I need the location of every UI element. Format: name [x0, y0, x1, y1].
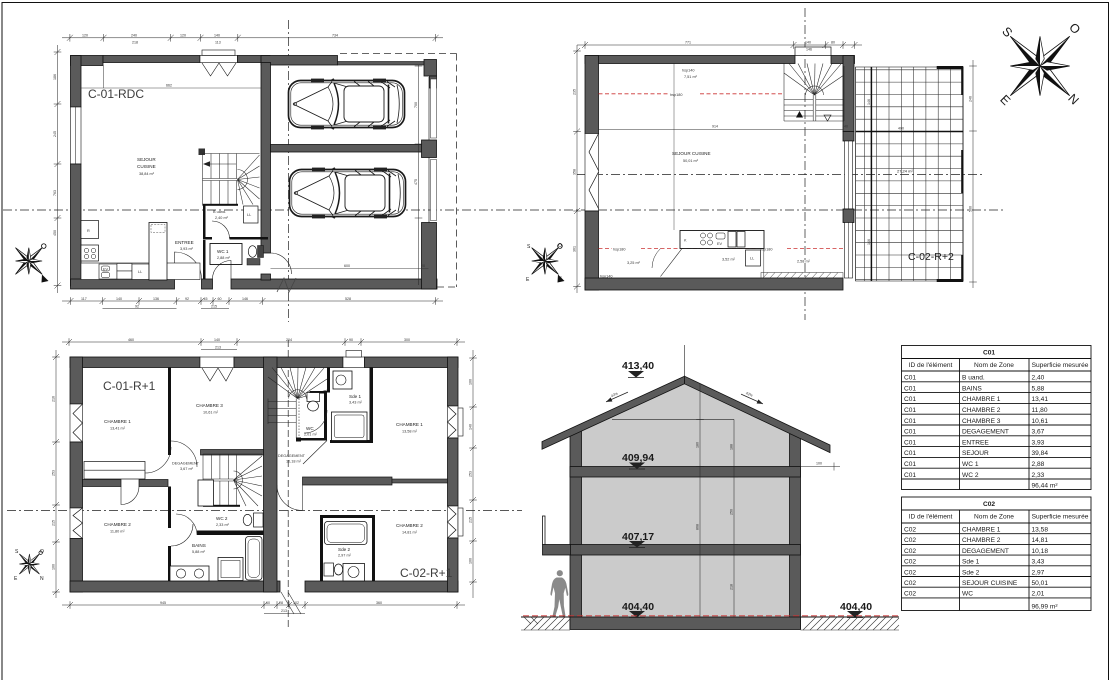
- svg-text:C-02-R+2: C-02-R+2: [908, 251, 954, 263]
- svg-text:hsp180: hsp180: [613, 248, 625, 252]
- svg-text:240: 240: [131, 34, 137, 38]
- svg-text:N: N: [40, 576, 44, 582]
- svg-text:C01: C01: [904, 439, 916, 446]
- svg-text:102: 102: [293, 601, 299, 605]
- svg-text:146: 146: [867, 239, 871, 245]
- svg-text:WC 1: WC 1: [962, 461, 979, 468]
- svg-text:528: 528: [345, 297, 351, 301]
- svg-text:C02: C02: [904, 548, 916, 555]
- svg-text:945: 945: [160, 601, 166, 605]
- svg-text:868: 868: [696, 524, 700, 530]
- svg-text:C01: C01: [904, 429, 916, 436]
- svg-text:2,01: 2,01: [1032, 591, 1045, 598]
- svg-text:SEJOUR: SEJOUR: [137, 157, 156, 162]
- svg-text:Superficie mesurée: Superficie mesurée: [1032, 514, 1089, 521]
- svg-text:662: 662: [166, 84, 172, 88]
- svg-text:2,40: 2,40: [1032, 375, 1045, 382]
- svg-text:BAINS: BAINS: [962, 385, 982, 392]
- svg-text:216: 216: [52, 396, 56, 402]
- svg-text:C01: C01: [904, 385, 916, 392]
- svg-text:C01: C01: [904, 396, 916, 403]
- svg-text:CHAMBRE 1: CHAMBRE 1: [104, 419, 131, 424]
- svg-text:B uand.: B uand.: [213, 210, 226, 214]
- svg-text:BAINS: BAINS: [192, 543, 206, 548]
- svg-text:11,80 m²: 11,80 m²: [110, 530, 125, 534]
- svg-text:C01: C01: [904, 407, 916, 414]
- svg-text:CHAMBRE 3: CHAMBRE 3: [196, 403, 223, 408]
- svg-text:113: 113: [215, 41, 221, 45]
- svg-text:SEJOUR: SEJOUR: [962, 450, 989, 457]
- svg-text:60: 60: [218, 297, 222, 301]
- svg-text:2,58 m²: 2,58 m²: [797, 260, 811, 264]
- svg-text:475: 475: [414, 179, 418, 185]
- svg-text:2,40 m²: 2,40 m²: [215, 216, 229, 220]
- svg-text:7,51 m²: 7,51 m²: [684, 75, 698, 79]
- svg-text:CHAMBRE 2: CHAMBRE 2: [104, 522, 131, 527]
- svg-text:CUISINE: CUISINE: [137, 164, 156, 169]
- svg-text:146: 146: [806, 48, 812, 52]
- svg-text:450: 450: [53, 230, 57, 236]
- svg-text:90: 90: [349, 338, 353, 342]
- svg-text:O: O: [558, 243, 562, 249]
- svg-text:ENTREE: ENTREE: [175, 240, 194, 245]
- svg-text:R: R: [87, 229, 90, 233]
- svg-text:80: 80: [831, 41, 835, 45]
- svg-text:Sde 2: Sde 2: [338, 547, 350, 552]
- svg-text:771: 771: [685, 41, 691, 45]
- svg-text:C02: C02: [983, 501, 995, 508]
- svg-text:100: 100: [469, 379, 473, 385]
- svg-text:2,33 m²: 2,33 m²: [216, 523, 230, 527]
- svg-text:300: 300: [404, 338, 410, 342]
- svg-text:188: 188: [730, 444, 734, 450]
- svg-text:245: 245: [53, 131, 57, 137]
- svg-text:914: 914: [712, 125, 718, 129]
- svg-text:204: 204: [286, 338, 292, 342]
- svg-text:763: 763: [53, 190, 57, 196]
- svg-text:50,01: 50,01: [1032, 580, 1049, 587]
- svg-text:3,67: 3,67: [1032, 429, 1045, 436]
- svg-text:218: 218: [132, 41, 138, 45]
- svg-text:ID de l'élément: ID de l'élément: [909, 362, 953, 369]
- svg-text:DEGAGEMENT: DEGAGEMENT: [278, 454, 306, 458]
- svg-text:50,01 m²: 50,01 m²: [683, 159, 699, 163]
- svg-text:C01: C01: [904, 375, 916, 382]
- svg-text:C01: C01: [904, 418, 916, 425]
- svg-text:11,80: 11,80: [1032, 407, 1048, 414]
- svg-text:C01: C01: [904, 472, 916, 479]
- svg-text:3,25 m²: 3,25 m²: [627, 261, 641, 265]
- svg-text:CHAMBRE 2: CHAMBRE 2: [962, 537, 1001, 544]
- svg-text:C01: C01: [904, 461, 916, 468]
- svg-text:96,44 m²: 96,44 m²: [1032, 482, 1059, 489]
- svg-text:hsp140: hsp140: [600, 275, 612, 279]
- svg-text:5,88: 5,88: [1032, 385, 1045, 392]
- svg-text:360: 360: [376, 601, 382, 605]
- svg-text:235: 235: [573, 89, 577, 95]
- svg-text:92: 92: [135, 304, 139, 308]
- svg-text:C02: C02: [904, 559, 916, 566]
- svg-text:WC 2: WC 2: [962, 472, 979, 479]
- svg-text:213: 213: [281, 609, 287, 613]
- svg-text:DEGAGEMENT: DEGAGEMENT: [962, 429, 1009, 436]
- svg-text:WC: WC: [962, 591, 973, 598]
- svg-text:10,61: 10,61: [1032, 418, 1049, 425]
- svg-text:2,97 m²: 2,97 m²: [338, 554, 352, 558]
- svg-text:180: 180: [696, 442, 700, 448]
- svg-text:60: 60: [266, 601, 270, 605]
- svg-text:3,43: 3,43: [1032, 559, 1045, 566]
- svg-text:140: 140: [214, 338, 220, 342]
- svg-text:3,67 m²: 3,67 m²: [180, 467, 194, 471]
- svg-text:3,93: 3,93: [1032, 439, 1045, 446]
- svg-text:13,41: 13,41: [1032, 396, 1049, 403]
- svg-text:C-02-R+1: C-02-R+1: [400, 566, 453, 580]
- svg-text:C-01-RDC: C-01-RDC: [88, 87, 144, 101]
- svg-text:Sde 1: Sde 1: [962, 559, 980, 566]
- svg-text:92: 92: [185, 297, 189, 301]
- svg-text:WC 1: WC 1: [217, 249, 229, 254]
- svg-text:215: 215: [211, 304, 217, 308]
- svg-text:EV: EV: [103, 268, 109, 272]
- svg-text:120: 120: [180, 34, 186, 38]
- svg-text:253: 253: [52, 470, 56, 476]
- svg-text:250: 250: [730, 509, 734, 515]
- svg-text:Superficie mesurée: Superficie mesurée: [1032, 362, 1089, 369]
- svg-text:13,58: 13,58: [1032, 527, 1049, 534]
- svg-text:100: 100: [52, 564, 56, 570]
- svg-text:358: 358: [573, 169, 577, 175]
- svg-text:39,84: 39,84: [1032, 450, 1049, 457]
- svg-text:213: 213: [215, 345, 221, 349]
- svg-text:413,40: 413,40: [622, 360, 654, 372]
- svg-text:ID de l'élément: ID de l'élément: [909, 514, 953, 521]
- svg-text:215: 215: [52, 520, 56, 526]
- svg-text:96,99 m²: 96,99 m²: [1032, 603, 1059, 610]
- svg-text:700: 700: [414, 102, 418, 108]
- svg-text:C02: C02: [904, 527, 916, 534]
- svg-text:13,58 m²: 13,58 m²: [402, 430, 418, 434]
- svg-text:120: 120: [82, 34, 88, 38]
- svg-text:CHAMBRE 1: CHAMBRE 1: [962, 396, 1001, 403]
- svg-text:45: 45: [204, 297, 208, 301]
- svg-text:734: 734: [332, 34, 338, 38]
- svg-text:186: 186: [53, 74, 57, 80]
- svg-text:136: 136: [153, 297, 159, 301]
- svg-text:146: 146: [242, 297, 248, 301]
- svg-text:C02: C02: [904, 569, 916, 576]
- svg-text:C01: C01: [904, 450, 916, 457]
- svg-text:N: N: [558, 276, 562, 282]
- svg-text:409,94: 409,94: [622, 452, 654, 464]
- svg-text:ENTREE: ENTREE: [962, 439, 989, 446]
- svg-text:140: 140: [805, 41, 811, 45]
- svg-text:117: 117: [81, 297, 87, 301]
- svg-text:140: 140: [116, 297, 122, 301]
- svg-text:C01: C01: [983, 350, 995, 357]
- svg-text:146: 146: [867, 99, 871, 105]
- svg-text:3,52 m²: 3,52 m²: [722, 258, 736, 262]
- svg-text:10,18: 10,18: [1032, 548, 1049, 555]
- svg-text:LL: LL: [247, 213, 251, 217]
- svg-text:C-01-R+1: C-01-R+1: [103, 379, 156, 393]
- svg-text:13,41 m²: 13,41 m²: [110, 427, 126, 431]
- svg-text:DEGAGEMENT: DEGAGEMENT: [962, 548, 1009, 555]
- svg-text:361: 361: [573, 246, 577, 252]
- svg-text:400: 400: [898, 127, 904, 131]
- svg-text:CHAMBRE 2: CHAMBRE 2: [396, 523, 423, 528]
- svg-text:CHAMBRE 2: CHAMBRE 2: [962, 407, 1001, 414]
- svg-text:C02: C02: [904, 591, 916, 598]
- svg-text:560: 560: [969, 206, 973, 212]
- svg-text:CHAMBRE 1: CHAMBRE 1: [396, 422, 423, 427]
- svg-text:460: 460: [128, 338, 134, 342]
- svg-text:WC 2: WC 2: [216, 516, 228, 521]
- svg-text:2,88 m²: 2,88 m²: [217, 256, 231, 260]
- svg-text:O: O: [40, 549, 44, 555]
- svg-text:14,81: 14,81: [1032, 537, 1049, 544]
- svg-text:140: 140: [214, 34, 220, 38]
- svg-text:Nom de Zone: Nom de Zone: [974, 514, 1014, 521]
- svg-text:2,97: 2,97: [1032, 569, 1045, 576]
- svg-text:2,88: 2,88: [1032, 461, 1045, 468]
- svg-text:10,61 m²: 10,61 m²: [203, 411, 219, 415]
- svg-text:14,81 m²: 14,81 m²: [402, 531, 418, 535]
- svg-text:253: 253: [469, 471, 473, 477]
- svg-text:215: 215: [469, 517, 473, 523]
- svg-text:EV: EV: [717, 242, 723, 246]
- svg-text:LL: LL: [138, 270, 142, 274]
- svg-text:Sde 1: Sde 1: [349, 394, 361, 399]
- svg-text:DEGAGEMENT: DEGAGEMENT: [172, 462, 200, 466]
- svg-text:B uand.: B uand.: [962, 375, 985, 382]
- svg-text:WC: WC: [306, 426, 314, 431]
- svg-text:218: 218: [730, 584, 734, 590]
- svg-text:28: 28: [279, 601, 283, 605]
- svg-text:SEJOUR CUISINE: SEJOUR CUISINE: [962, 580, 1018, 587]
- svg-text:hsp140: hsp140: [682, 69, 694, 73]
- svg-text:600: 600: [344, 264, 350, 268]
- svg-text:C02: C02: [904, 580, 916, 587]
- svg-text:246: 246: [969, 96, 973, 102]
- svg-text:Nom de Zone: Nom de Zone: [974, 362, 1014, 369]
- svg-text:SEJOUR CUISINE: SEJOUR CUISINE: [672, 151, 711, 156]
- svg-text:hsp180: hsp180: [670, 93, 682, 97]
- svg-text:20: 20: [421, 264, 425, 268]
- svg-text:10,18 m²: 10,18 m²: [286, 460, 302, 464]
- svg-text:C02: C02: [904, 537, 916, 544]
- svg-text:100: 100: [816, 462, 822, 466]
- svg-text:3,93 m²: 3,93 m²: [180, 247, 194, 251]
- svg-text:CHAMBRE 1: CHAMBRE 1: [962, 527, 1001, 534]
- svg-text:3,43 m²: 3,43 m²: [349, 401, 363, 405]
- svg-text:27,24 m²: 27,24 m²: [897, 169, 913, 174]
- svg-text:CHAMBRE 3: CHAMBRE 3: [962, 418, 1001, 425]
- svg-text:38,84 m²: 38,84 m²: [139, 172, 155, 176]
- svg-text:40: 40: [844, 125, 848, 129]
- svg-text:LL: LL: [750, 257, 754, 261]
- svg-text:5,88 m²: 5,88 m²: [192, 550, 206, 554]
- svg-text:140: 140: [469, 424, 473, 430]
- svg-text:2,33: 2,33: [1032, 472, 1045, 479]
- svg-text:100: 100: [469, 558, 473, 564]
- svg-text:Sde 2: Sde 2: [962, 569, 980, 576]
